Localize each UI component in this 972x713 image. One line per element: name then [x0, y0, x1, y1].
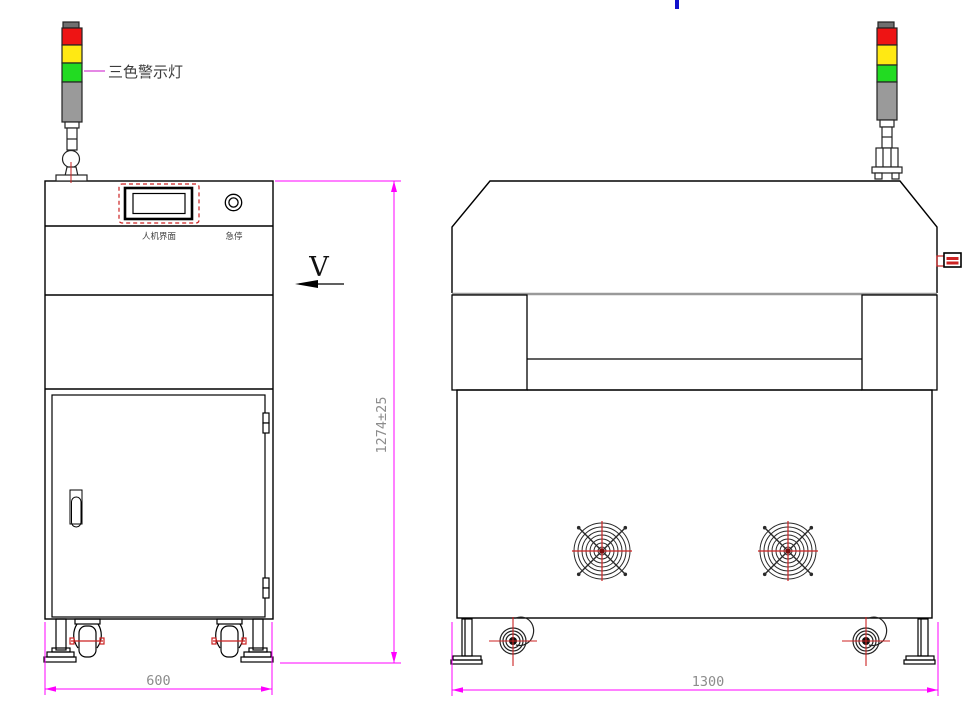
door-handle [70, 490, 82, 527]
front-warning-light-tower [872, 22, 902, 179]
front-view [451, 22, 961, 666]
side-width-dimension-text: 600 [146, 673, 170, 689]
door-hinge-top [263, 413, 269, 433]
door-hinge-bottom [263, 578, 269, 598]
fan-grille [572, 521, 632, 581]
caster-wheel [70, 619, 104, 657]
tower-green-lamp [62, 63, 82, 82]
view-direction-arrowhead [295, 280, 318, 288]
hmi-screen [119, 184, 199, 223]
view-direction-letter: V [308, 252, 329, 283]
side-warning-light-tower [56, 22, 87, 183]
front-width-dimension: 1300 [452, 622, 938, 696]
tower-green-lamp [877, 65, 897, 82]
front-width-dimension-text: 1300 [692, 674, 725, 690]
front-columns [452, 295, 937, 390]
tower-light-label: 三色警示灯 [108, 63, 183, 81]
height-dimension-text: 1274±25 [374, 397, 390, 454]
tower-cap [63, 22, 79, 28]
side-feet [44, 619, 273, 662]
leveling-foot [904, 619, 935, 664]
tower-yellow-lamp [877, 45, 897, 65]
front-feet [451, 617, 935, 666]
swivel-caster [842, 617, 890, 666]
tower-body [877, 82, 897, 120]
tower-cap [878, 22, 894, 28]
cabinet-door [52, 395, 269, 617]
cad-drawing: 三色警示灯 人机界面 急停 [0, 0, 972, 713]
blue-artifact [675, 0, 679, 9]
front-base [457, 390, 932, 618]
leveling-foot [451, 619, 482, 664]
estop-button [225, 194, 241, 210]
front-hood [452, 181, 937, 294]
swivel-caster [489, 617, 537, 666]
tower-light-callout: 三色警示灯 [84, 63, 183, 81]
tower-red-lamp [62, 28, 82, 45]
view-direction-marker: V [295, 252, 344, 288]
tower-red-lamp [877, 28, 897, 45]
estop-label: 急停 [225, 231, 243, 242]
hmi-label: 人机界面 [142, 231, 177, 242]
fan-grille [758, 521, 818, 581]
caster-wheel [212, 619, 246, 657]
side-connector [937, 253, 961, 267]
side-view: 三色警示灯 人机界面 急停 [44, 22, 273, 662]
height-dimension: 1274±25 [275, 181, 401, 663]
side-body-outline [45, 181, 273, 619]
tower-yellow-lamp [62, 45, 82, 63]
screen-display [133, 194, 185, 214]
tower-mount [872, 120, 902, 179]
tower-body [62, 82, 82, 122]
cad-sheet: 三色警示灯 人机界面 急停 [0, 0, 972, 713]
